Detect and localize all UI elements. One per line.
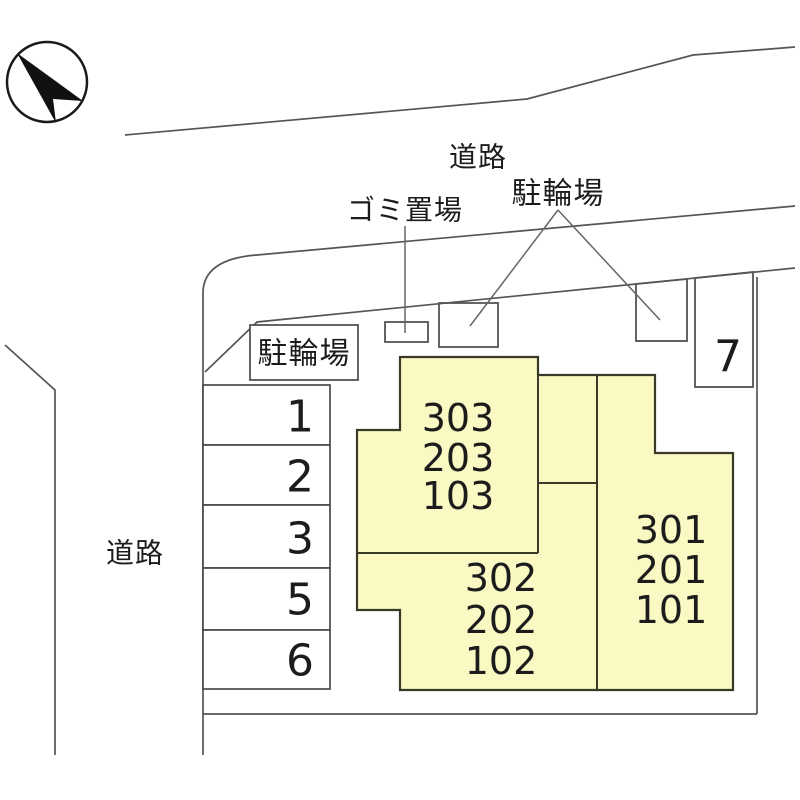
unit-201: 201 xyxy=(635,548,708,592)
site-plan: 道路 ゴミ置場 駐輪場 道路 駐輪場 1 2 3 5 6 7 303 203 1… xyxy=(0,0,800,800)
bicycle-label-top: 駐輪場 xyxy=(512,177,605,212)
parking-stall-5-number: 5 xyxy=(286,575,314,626)
north-arrow-icon xyxy=(7,42,87,123)
bicycle-parking-box-right xyxy=(636,279,687,341)
garbage-area-box xyxy=(385,322,428,342)
unit-202: 202 xyxy=(465,598,538,642)
garbage-label: ゴミ置場 xyxy=(347,194,463,227)
road-label-left: 道路 xyxy=(106,537,164,570)
bicycle-parking-box-left xyxy=(439,303,498,347)
bicycle-leader-line-left xyxy=(470,210,558,326)
parking-stall-6-number: 6 xyxy=(286,636,314,687)
site-boundary-left-outer xyxy=(5,345,55,755)
road-edge-top xyxy=(125,47,795,135)
bicycle-leader-line-right xyxy=(558,210,660,320)
road-label-top: 道路 xyxy=(449,141,507,174)
unit-301: 301 xyxy=(635,508,708,552)
unit-102: 102 xyxy=(465,639,538,683)
parking-stall-3-number: 3 xyxy=(286,514,314,565)
parking-stall-2-number: 2 xyxy=(286,452,314,503)
bicycle-label-boxed: 駐輪場 xyxy=(258,337,351,372)
unit-101: 101 xyxy=(635,588,708,632)
unit-302: 302 xyxy=(465,556,538,600)
unit-303: 303 xyxy=(422,396,495,440)
parking-stall-7-number: 7 xyxy=(714,332,742,383)
unit-103: 103 xyxy=(422,474,495,518)
site-plan-canvas: 道路 ゴミ置場 駐輪場 道路 駐輪場 1 2 3 5 6 7 303 203 1… xyxy=(0,0,800,800)
parking-stall-1-number: 1 xyxy=(286,392,314,443)
